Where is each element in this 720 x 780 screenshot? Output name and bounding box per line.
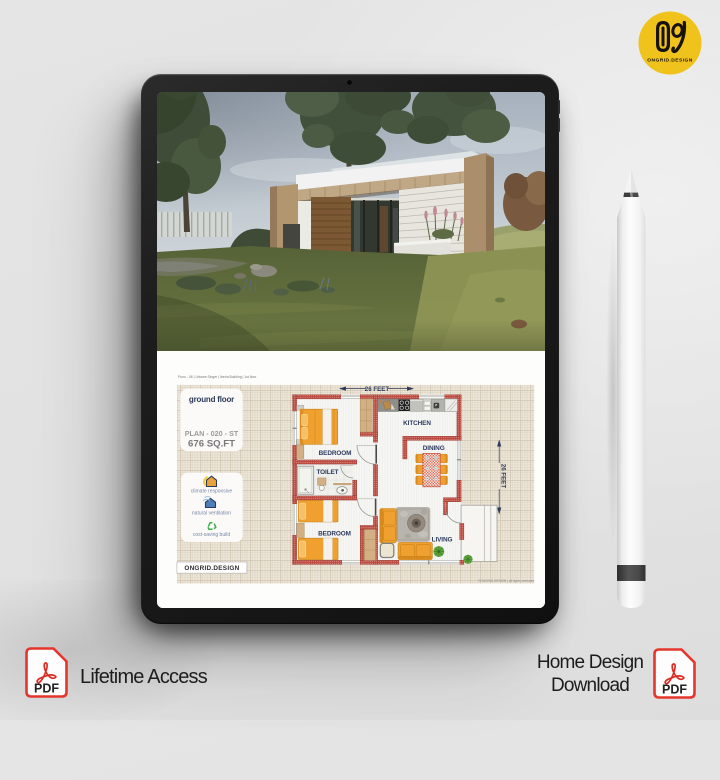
svg-text:676 SQ.FT: 676 SQ.FT — [188, 438, 235, 449]
svg-text:ONGRID.DESIGN: ONGRID.DESIGN — [647, 58, 693, 64]
svg-text:PLAN - 020 - ST: PLAN - 020 - ST — [185, 429, 239, 438]
svg-text:PDF: PDF — [34, 681, 59, 695]
svg-text:26 FEET: 26 FEET — [500, 464, 507, 489]
svg-text:LIVING: LIVING — [432, 536, 453, 543]
svg-text:ground floor: ground floor — [189, 395, 234, 404]
svg-text:26 FEET: 26 FEET — [365, 386, 390, 393]
svg-text:natural ventilation: natural ventilation — [192, 510, 231, 516]
svg-text:Puno - 06 | Urbane Singer | Ib: Puno - 06 | Urbane Singer | Iberia Build… — [178, 375, 257, 379]
svg-text:climate responsive: climate responsive — [191, 488, 233, 494]
svg-text:KITCHEN: KITCHEN — [403, 420, 431, 427]
svg-text:BEDROOM: BEDROOM — [318, 530, 351, 537]
svg-text:ONGRID.DESIGN: ONGRID.DESIGN — [184, 565, 239, 572]
svg-text:cost-saving build: cost-saving build — [193, 532, 230, 538]
svg-text:BEDROOM: BEDROOM — [319, 450, 352, 457]
svg-text:DINING: DINING — [423, 445, 445, 452]
svg-text:TOILET: TOILET — [316, 469, 338, 476]
svg-text:PDF: PDF — [662, 682, 687, 696]
svg-text:©ONGRID.DESIGN | all rights re: ©ONGRID.DESIGN | all rights reserved — [478, 579, 534, 583]
